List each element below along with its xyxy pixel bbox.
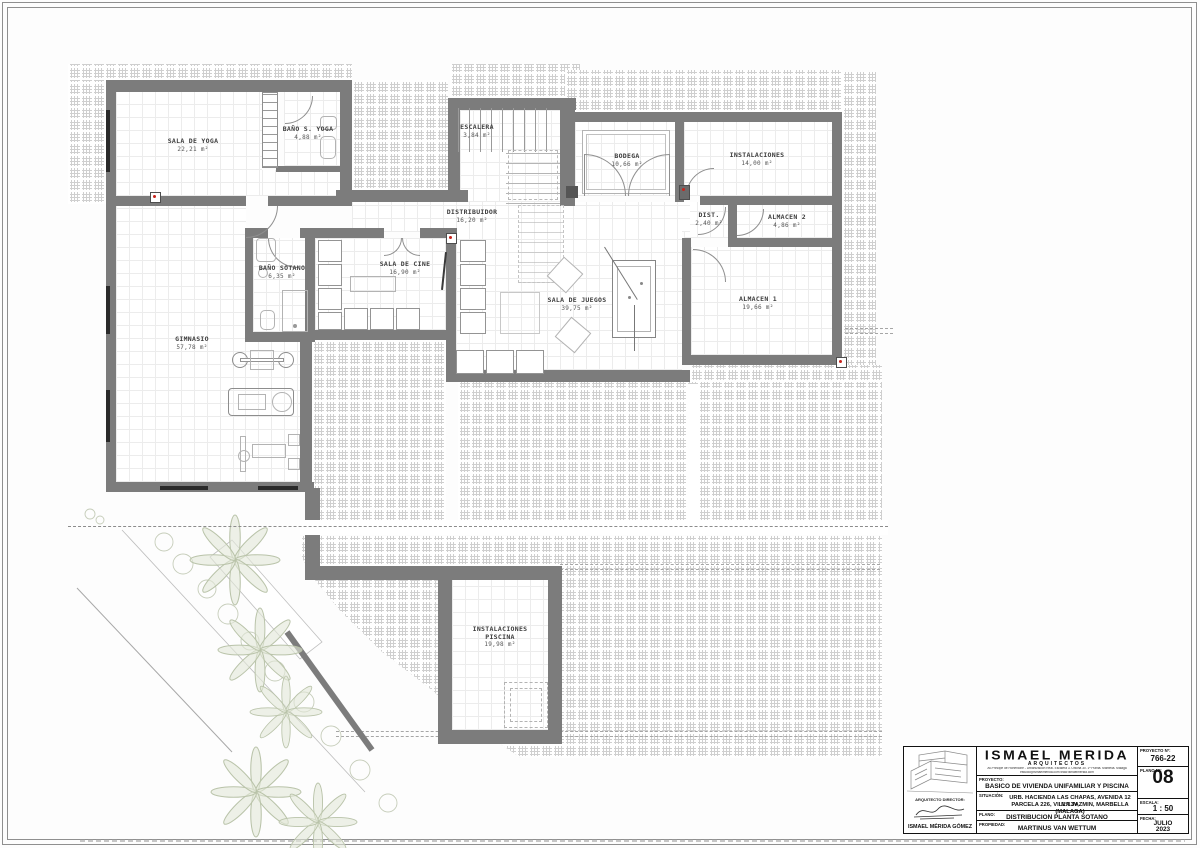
shelf-module xyxy=(460,312,486,334)
proyecto-num-row: PROYECTO Nº: 766-22 xyxy=(1138,747,1188,767)
billiard-cue xyxy=(634,305,635,351)
wall xyxy=(276,166,342,172)
sofa-module xyxy=(516,350,544,374)
gym-rack-foot xyxy=(288,434,300,446)
billiard-ball xyxy=(628,296,631,299)
drawing-sheet: SALA DE YOGA22,21 m² BAÑO S. YOGA4,88 m²… xyxy=(0,0,1200,848)
room-label-distribuidor: DISTRIBUIDOR16,20 m² xyxy=(447,209,498,224)
paving-hatch xyxy=(68,64,352,80)
room-label-almacen1: ALMACEN 119,66 m² xyxy=(739,296,777,311)
room-label-instalaciones-piscina: INSTALACIONES PISCINA19,98 m² xyxy=(465,626,535,649)
wall xyxy=(682,355,842,365)
propiedad-value: MARTINUS VAN WETTUM xyxy=(977,825,1137,832)
garden-landscape xyxy=(60,500,430,848)
patio-hatch xyxy=(352,80,448,190)
wall xyxy=(548,566,562,744)
stair-void-outline xyxy=(508,150,558,200)
plano-num-value: 08 xyxy=(1138,774,1188,781)
paving-hatch xyxy=(68,80,106,204)
escala-row: ESCALA: 1 : 50 xyxy=(1138,799,1188,815)
paving-hatch xyxy=(450,64,580,98)
room-label-dist: DIST.2,40 m² xyxy=(695,212,722,227)
room-label-escalera: ESCALERA3,84 m² xyxy=(460,124,494,139)
paving-hatch xyxy=(458,382,882,522)
paving-hatch xyxy=(842,72,876,384)
firm-contact: estudio@ismaelmerida.com www.ismaelmerid… xyxy=(977,771,1137,775)
window xyxy=(106,390,110,442)
room-label-bodega: BODEGA10,66 m² xyxy=(611,153,642,168)
sofa-module xyxy=(370,308,394,330)
room-label-sala-cine: SALA DE CINE16,90 m² xyxy=(380,261,431,276)
palm-tree-icon xyxy=(250,676,322,748)
section-band xyxy=(300,520,888,535)
wall xyxy=(446,232,456,382)
shower-drain xyxy=(293,324,297,328)
room-label-sala-juegos: SALA DE JUEGOS39,75 m² xyxy=(548,297,607,312)
gym-rack-foot xyxy=(288,458,300,470)
shaft-box xyxy=(566,186,578,198)
room-label-instalaciones: INSTALACIONES14,00 m² xyxy=(730,152,785,167)
shelf-module xyxy=(460,240,486,262)
bathtub xyxy=(256,238,276,262)
fecha-row: FECHA: JULIO 2023 xyxy=(1138,815,1188,832)
paving-hatch xyxy=(690,365,882,382)
plano-value: DISTRIBUCION PLANTA SOTANO xyxy=(977,814,1137,821)
proyecto-label: PROYECTO: xyxy=(979,777,1004,782)
wall xyxy=(700,196,842,205)
utility-marker-icon xyxy=(836,357,847,368)
title-block: ARQUITECTO DIRECTOR: ISMAEL MÉRIDA GÓMEZ… xyxy=(903,746,1189,834)
wall xyxy=(268,196,342,206)
firm-row: ISMAEL MERIDA ARQUITECTOS Av.Principe de… xyxy=(977,747,1137,776)
proyecto-row: PROYECTO: BASICO DE VIVIENDA UNIFAMILIAR… xyxy=(977,776,1137,793)
window xyxy=(160,486,208,490)
room-label-bano-yoga: BAÑO S. YOGA4,88 m² xyxy=(283,126,334,141)
wall xyxy=(106,80,352,92)
gym-machine-pad xyxy=(238,394,266,410)
title-block-main-cell: ISMAEL MERIDA ARQUITECTOS Av.Principe de… xyxy=(977,747,1138,833)
utility-marker-icon xyxy=(150,192,161,203)
plano-row: PLANO: DISTRIBUCION PLANTA SOTANO xyxy=(977,811,1137,822)
sofa-module xyxy=(318,312,342,330)
proyecto-num-label: PROYECTO Nº: xyxy=(1140,748,1171,753)
sofa-module xyxy=(318,264,342,286)
proyecto-value: BASICO DE VIVIENDA UNIFAMILIAR Y PISCINA xyxy=(977,783,1137,790)
wall xyxy=(300,340,312,492)
room-label-bano-sotano: BAÑO SOTANO6,35 m² xyxy=(259,265,305,280)
window xyxy=(258,486,298,490)
gym-bench xyxy=(250,350,274,370)
room-label-gimnasio: GIMNASIO57,78 m² xyxy=(175,336,209,351)
title-block-architect-cell: ARQUITECTO DIRECTOR: ISMAEL MÉRIDA GÓMEZ xyxy=(904,747,977,833)
closet-shelving xyxy=(262,92,278,168)
title-block-number-cell: PROYECTO Nº: 766-22 PLANO Nº: 08 ESCALA:… xyxy=(1138,747,1188,833)
situacion-label: SITUACIÓN: xyxy=(979,793,1003,798)
sofa-module xyxy=(318,240,342,262)
rug xyxy=(500,292,540,334)
coffee-table xyxy=(350,276,396,292)
room-label-sala-yoga: SALA DE YOGA22,21 m² xyxy=(168,138,219,153)
gym-machine-wheel xyxy=(272,392,292,412)
courtyard-hatch xyxy=(312,340,446,522)
retaining-wall-line xyxy=(77,588,232,752)
wall xyxy=(245,228,253,340)
director-name: ISMAEL MÉRIDA GÓMEZ xyxy=(904,824,976,830)
wall xyxy=(340,80,352,206)
wall xyxy=(106,196,246,206)
window xyxy=(106,110,110,172)
utility-marker-icon xyxy=(446,233,457,244)
signature-icon xyxy=(910,802,970,820)
sofa-module xyxy=(318,288,342,310)
pool-equipment-outline xyxy=(510,688,542,722)
gym-bench xyxy=(252,444,286,458)
wall xyxy=(438,566,562,580)
wall xyxy=(336,190,468,202)
toilet xyxy=(260,310,275,330)
house-sketch-icon xyxy=(905,749,975,795)
expansion-joint xyxy=(686,384,698,522)
floor-vestibule xyxy=(262,170,340,196)
billiard-ball xyxy=(640,282,643,285)
sofa-module xyxy=(486,350,514,374)
paving-hatch xyxy=(565,70,842,112)
window xyxy=(106,286,110,334)
room-label-almacen2: ALMACEN 24,86 m² xyxy=(768,214,806,229)
palm-tree-icon xyxy=(190,515,280,605)
plano-num-row: PLANO Nº: 08 xyxy=(1138,767,1188,799)
drain-line xyxy=(845,328,893,334)
wall xyxy=(438,566,452,744)
wall xyxy=(305,330,455,340)
wall xyxy=(565,112,842,122)
wall xyxy=(728,238,842,247)
drain-line xyxy=(560,564,880,570)
wall xyxy=(438,730,562,744)
propiedad-row: PROPIEDAD: MARTINUS VAN WETTUM xyxy=(977,821,1137,833)
escala-value: 1 : 50 xyxy=(1138,805,1188,812)
sofa-module xyxy=(456,350,484,374)
situacion-row: SITUACIÓN: URB. HACIENDA LAS CHAPAS, AVE… xyxy=(977,792,1137,810)
shelf-module xyxy=(460,288,486,310)
sofa-module xyxy=(344,308,368,330)
proyecto-num-value: 766-22 xyxy=(1138,755,1188,762)
sofa-module xyxy=(396,308,420,330)
palm-tree-icon xyxy=(218,608,302,692)
fecha-year: 2023 xyxy=(1138,826,1188,833)
section-line xyxy=(68,526,888,527)
firm-name: ISMAEL MERIDA xyxy=(977,750,1137,762)
utility-marker-icon xyxy=(679,185,690,200)
shelf-module xyxy=(460,264,486,286)
gym-weight-plate xyxy=(238,450,250,462)
wall xyxy=(682,238,691,365)
